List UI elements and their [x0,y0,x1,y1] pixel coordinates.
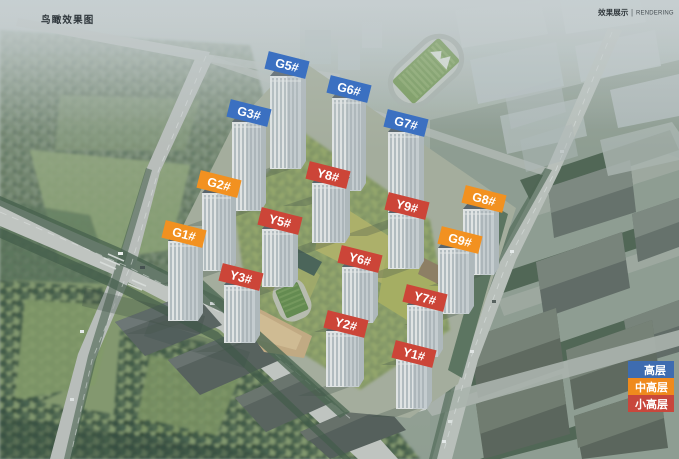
svg-text:|: | [631,8,633,17]
svg-text:RENDERING: RENDERING [636,11,674,17]
svg-text:鸟瞰效果图: 鸟瞰效果图 [41,14,95,26]
svg-text:高层: 高层 [644,363,666,377]
svg-text:效果展示: 效果展示 [598,7,629,17]
svg-text:中高层: 中高层 [635,380,668,394]
svg-text:小高层: 小高层 [634,397,668,411]
